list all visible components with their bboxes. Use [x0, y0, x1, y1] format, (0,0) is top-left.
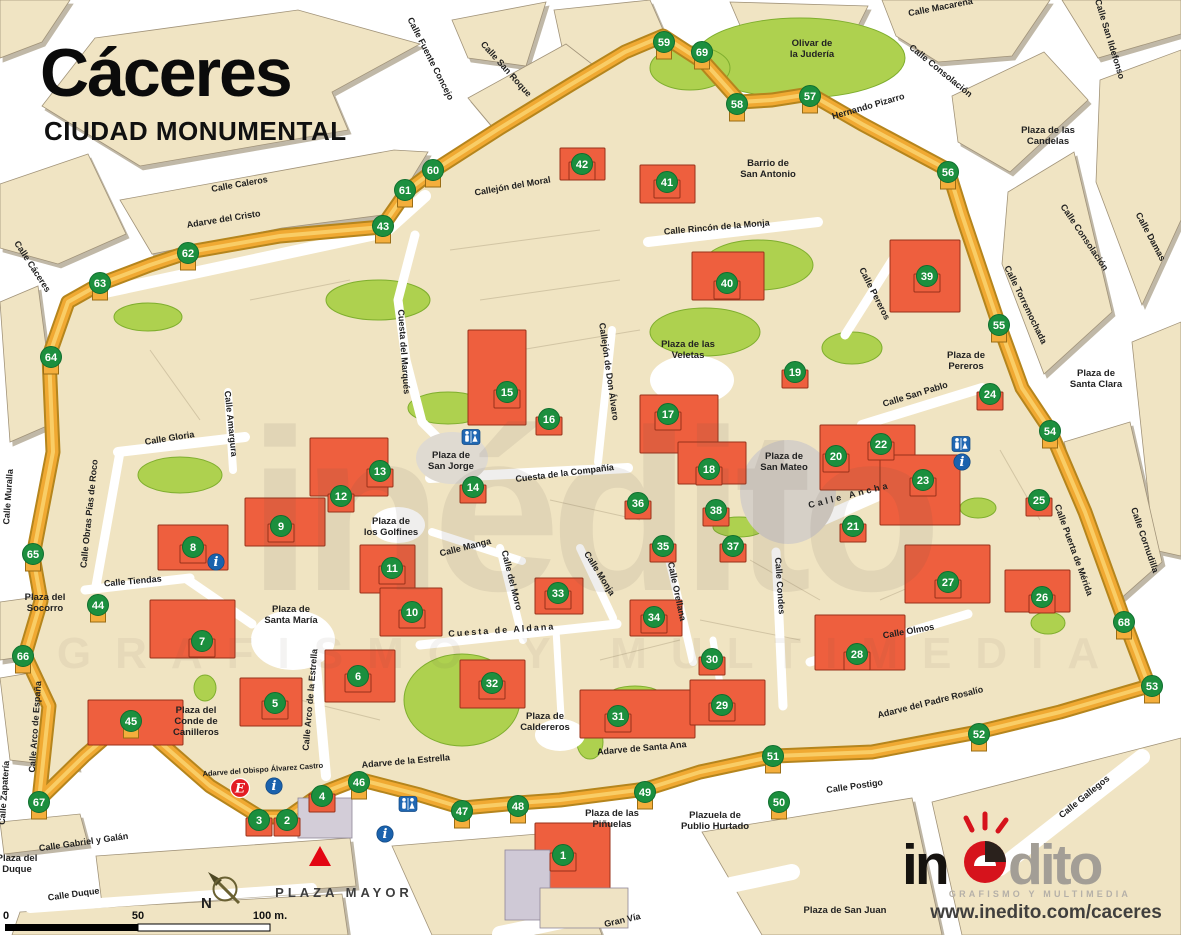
svg-text:21: 21: [847, 521, 859, 533]
map-marker-64[interactable]: 64: [41, 347, 62, 375]
logo-text-in: in: [902, 833, 947, 897]
caceres-monumental-map: inédito GRAFISMO Y MULTIMEDIA Calle Cale…: [0, 0, 1181, 935]
area-label: Plaza de lasCandelas: [1021, 125, 1075, 147]
svg-text:64: 64: [45, 352, 58, 364]
svg-text:49: 49: [639, 787, 651, 799]
area-label: Olivar dela Judería: [790, 38, 835, 60]
area-label: Plazuela dePublio Hurtado: [681, 810, 749, 832]
svg-text:9: 9: [278, 521, 284, 533]
svg-text:69: 69: [696, 47, 708, 59]
svg-text:32: 32: [486, 678, 498, 690]
svg-text:30: 30: [706, 654, 718, 666]
svg-text:i: i: [383, 827, 388, 842]
info-icon[interactable]: i: [208, 554, 224, 570]
svg-text:44: 44: [92, 600, 105, 612]
map-marker-61[interactable]: 61: [395, 180, 416, 208]
svg-text:7: 7: [199, 636, 205, 648]
svg-text:40: 40: [721, 278, 733, 290]
map-marker-63[interactable]: 63: [90, 273, 111, 301]
svg-text:6: 6: [355, 671, 361, 683]
wc-icon[interactable]: [462, 430, 480, 445]
map-marker-50[interactable]: 50: [769, 792, 790, 820]
svg-text:1: 1: [560, 850, 566, 862]
svg-text:22: 22: [875, 439, 887, 451]
svg-text:31: 31: [612, 711, 624, 723]
svg-text:52: 52: [973, 729, 985, 741]
svg-text:19: 19: [789, 367, 801, 379]
map-marker-46[interactable]: 46: [349, 772, 370, 800]
page-title: Cáceres: [40, 35, 291, 111]
map-marker-68[interactable]: 68: [1114, 612, 1135, 640]
svg-text:10: 10: [406, 607, 418, 619]
svg-text:50: 50: [773, 797, 785, 809]
compass-north-label: N: [201, 895, 212, 912]
svg-text:45: 45: [125, 716, 137, 728]
svg-text:55: 55: [993, 320, 1005, 332]
svg-text:68: 68: [1118, 617, 1130, 629]
svg-text:46: 46: [353, 777, 365, 789]
area-label: Plaza deSanta Clara: [1070, 368, 1123, 390]
svg-text:39: 39: [921, 271, 933, 283]
area-label: Plaza delConde deCanilleros: [173, 705, 219, 738]
area-label: Plaza deSan Jorge: [428, 450, 474, 472]
street-label: Calle Muralla: [1, 468, 15, 525]
map-marker-67[interactable]: 67: [29, 792, 50, 820]
svg-text:37: 37: [727, 541, 739, 553]
area-label: Plaza deCaldereros: [520, 711, 570, 733]
logo-text-dito: dito: [1008, 833, 1102, 897]
area-label: Plaza delSocorro: [25, 592, 66, 614]
map-marker-58[interactable]: 58: [727, 94, 748, 122]
svg-text:4: 4: [319, 791, 326, 803]
scale-bar-filled: [5, 924, 138, 931]
city-block: [1002, 152, 1112, 374]
svg-text:2: 2: [284, 815, 290, 827]
street-label: Calle Fuente Concejo: [405, 16, 456, 103]
svg-text:51: 51: [767, 751, 779, 763]
svg-text:33: 33: [552, 588, 564, 600]
scale-bar-empty: [138, 924, 270, 931]
svg-text:35: 35: [657, 541, 669, 553]
map-marker-55[interactable]: 55: [989, 315, 1010, 343]
svg-text:17: 17: [662, 409, 674, 421]
svg-text:26: 26: [1036, 592, 1048, 604]
svg-text:11: 11: [386, 563, 398, 575]
map-marker-51[interactable]: 51: [763, 746, 784, 774]
svg-text:14: 14: [467, 482, 480, 494]
e-badge-icon[interactable]: E: [231, 779, 250, 798]
area-label: Plaza delDuque: [0, 853, 37, 875]
park-green: [114, 303, 182, 331]
park-green: [138, 457, 222, 493]
svg-text:27: 27: [942, 577, 954, 589]
city-block: [1062, 0, 1181, 58]
info-icon[interactable]: i: [266, 778, 282, 794]
svg-text:23: 23: [917, 475, 929, 487]
svg-text:65: 65: [27, 549, 39, 561]
map-marker-56[interactable]: 56: [938, 162, 959, 190]
svg-text:3: 3: [256, 815, 262, 827]
city-block: [952, 52, 1088, 172]
svg-text:8: 8: [190, 542, 196, 554]
park-green: [960, 498, 996, 518]
map-marker-60[interactable]: 60: [423, 160, 444, 188]
svg-text:41: 41: [661, 177, 673, 189]
park-green: [822, 332, 882, 364]
info-icon[interactable]: i: [954, 454, 970, 470]
svg-text:47: 47: [456, 806, 468, 818]
svg-text:34: 34: [648, 612, 661, 624]
map-marker-65[interactable]: 65: [23, 544, 44, 572]
area-label: Plaza de San Juan: [804, 905, 887, 916]
svg-text:57: 57: [804, 91, 816, 103]
svg-text:20: 20: [830, 451, 842, 463]
svg-text:38: 38: [710, 505, 722, 517]
svg-text:43: 43: [377, 221, 389, 233]
map-canvas: inédito GRAFISMO Y MULTIMEDIA Calle Cale…: [0, 0, 1181, 935]
svg-text:54: 54: [1044, 426, 1057, 438]
svg-text:13: 13: [374, 466, 386, 478]
scale-hundred: 100 m.: [253, 910, 287, 922]
svg-text:61: 61: [399, 185, 411, 197]
svg-text:60: 60: [427, 165, 439, 177]
svg-text:59: 59: [658, 37, 670, 49]
park-green: [194, 675, 216, 701]
watermark-tagline: GRAFISMO Y MULTIMEDIA: [57, 629, 1123, 678]
svg-text:62: 62: [182, 248, 194, 260]
svg-text:5: 5: [272, 698, 278, 710]
svg-text:16: 16: [543, 414, 555, 426]
map-marker-53[interactable]: 53: [1142, 676, 1163, 704]
svg-text:12: 12: [335, 491, 347, 503]
svg-text:15: 15: [501, 387, 513, 399]
map-marker-54[interactable]: 54: [1040, 421, 1061, 449]
map-marker-62[interactable]: 62: [178, 243, 199, 271]
area-label: Barrio deSan Antonio: [740, 158, 796, 180]
svg-text:i: i: [272, 779, 277, 794]
svg-text:29: 29: [716, 700, 728, 712]
map-marker-47[interactable]: 47: [452, 801, 473, 829]
wc-icon[interactable]: [399, 797, 417, 812]
svg-text:24: 24: [984, 389, 997, 401]
svg-text:36: 36: [632, 498, 644, 510]
map-marker-52[interactable]: 52: [969, 724, 990, 752]
info-icon[interactable]: i: [377, 826, 393, 842]
area-label: Plaza deSan Mateo: [760, 451, 808, 473]
logo-tagline: GRAFISMO Y MULTIMEDIA: [949, 889, 1131, 899]
scale-zero: 0: [3, 910, 9, 922]
svg-text:28: 28: [851, 649, 863, 661]
area-label: Plaza dePereros: [947, 350, 985, 372]
map-marker-69[interactable]: 69: [692, 42, 713, 70]
map-marker-48[interactable]: 48: [508, 796, 529, 824]
svg-text:18: 18: [703, 464, 715, 476]
svg-text:42: 42: [576, 159, 588, 171]
scale-fifty: 50: [132, 910, 144, 922]
map-marker-43[interactable]: 43: [373, 216, 394, 244]
svg-text:i: i: [214, 555, 219, 570]
map-marker-49[interactable]: 49: [635, 782, 656, 810]
map-marker-44[interactable]: 44: [88, 595, 109, 623]
svg-text:53: 53: [1146, 681, 1158, 693]
svg-text:E: E: [234, 782, 246, 797]
map-marker-59[interactable]: 59: [654, 32, 675, 60]
monument-building: [580, 690, 695, 738]
svg-text:25: 25: [1033, 495, 1045, 507]
svg-text:67: 67: [33, 797, 45, 809]
svg-text:i: i: [960, 455, 965, 470]
area-label: PLAZA MAYOR: [275, 885, 413, 900]
svg-text:66: 66: [17, 651, 29, 663]
website-link[interactable]: www.inedito.com/caceres: [929, 902, 1162, 923]
svg-text:58: 58: [731, 99, 743, 111]
street-label: Calle Zapatería: [0, 760, 11, 826]
page-subtitle: CIUDAD MONUMENTAL: [44, 116, 347, 146]
map-marker-45[interactable]: 45: [121, 711, 142, 739]
area-label: Plaza de lasPiñuelas: [585, 808, 639, 830]
park-green: [326, 280, 430, 320]
svg-text:63: 63: [94, 278, 106, 290]
wc-icon[interactable]: [952, 437, 970, 452]
svg-text:56: 56: [942, 167, 954, 179]
svg-text:48: 48: [512, 801, 524, 813]
map-marker-66[interactable]: 66: [13, 646, 34, 674]
map-marker-57[interactable]: 57: [800, 86, 821, 114]
